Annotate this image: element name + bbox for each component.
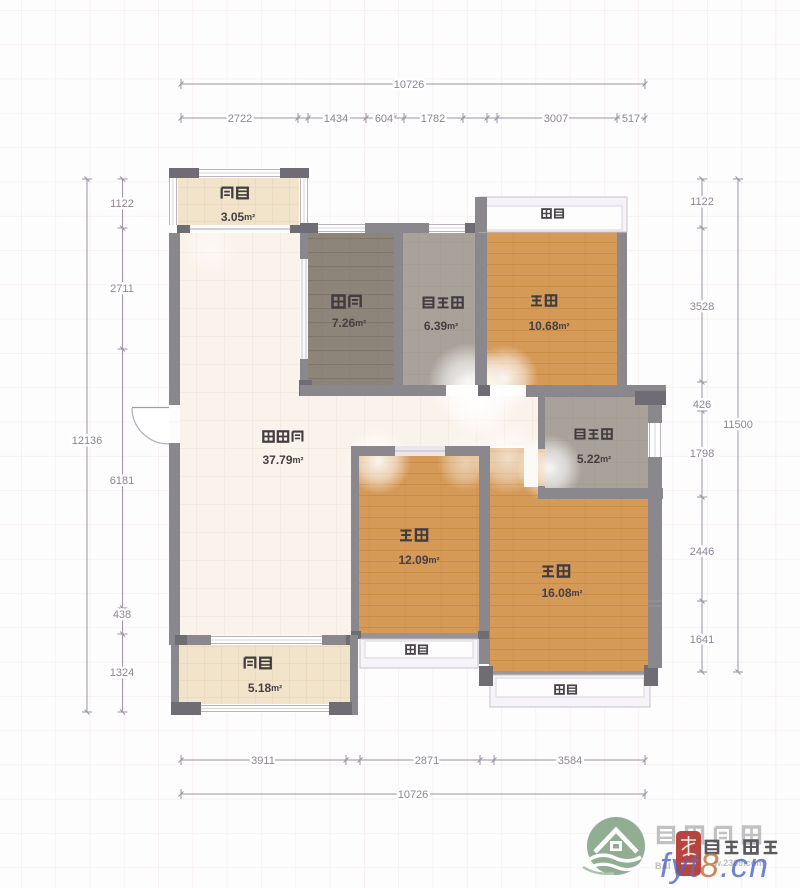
svg-text:3007: 3007	[544, 113, 568, 125]
svg-text:2722: 2722	[228, 113, 252, 125]
svg-text:37.79m²: 37.79m²	[262, 453, 303, 467]
svg-text:16.08m²: 16.08m²	[541, 586, 582, 600]
svg-text:604: 604	[375, 113, 393, 125]
svg-text:3.05m²: 3.05m²	[221, 210, 255, 224]
svg-text:1122: 1122	[690, 196, 714, 208]
svg-text:3528: 3528	[690, 301, 714, 313]
svg-text:12136: 12136	[72, 435, 103, 447]
svg-text:517: 517	[622, 113, 640, 125]
svg-text:1434: 1434	[324, 113, 348, 125]
svg-text:10726: 10726	[398, 789, 429, 801]
svg-text:3584: 3584	[558, 755, 582, 767]
svg-text:11500: 11500	[723, 419, 753, 431]
svg-text:1324: 1324	[110, 667, 134, 679]
svg-text:1641: 1641	[690, 634, 714, 646]
svg-text:1122: 1122	[110, 198, 134, 210]
svg-text:6.39m²: 6.39m²	[424, 319, 458, 333]
svg-text:1782: 1782	[421, 113, 445, 125]
svg-text:426: 426	[693, 399, 711, 411]
svg-text:438: 438	[113, 609, 131, 621]
svg-text:1798: 1798	[690, 448, 714, 460]
svg-text:2446: 2446	[690, 546, 714, 558]
svg-text:10726: 10726	[394, 79, 425, 91]
svg-text:6181: 6181	[110, 475, 134, 487]
svg-text:2871: 2871	[415, 755, 439, 767]
svg-text:3911: 3911	[251, 755, 275, 767]
svg-text:2711: 2711	[110, 283, 134, 295]
svg-text:10.68m²: 10.68m²	[528, 319, 569, 333]
svg-text:12.09m²: 12.09m²	[398, 553, 439, 567]
svg-text:7.26m²: 7.26m²	[332, 316, 366, 330]
svg-text:fyt8.cn: fyt8.cn	[660, 847, 768, 885]
svg-text:5.18m²: 5.18m²	[248, 681, 282, 695]
svg-text:5.22m²: 5.22m²	[577, 452, 611, 466]
